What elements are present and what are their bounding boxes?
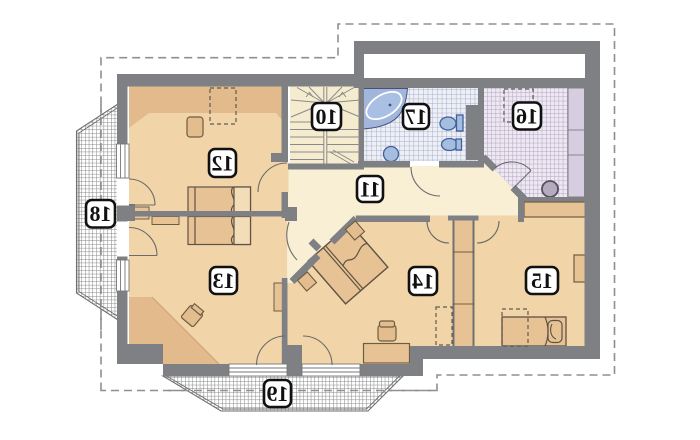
- svg-text:14: 14: [412, 269, 434, 294]
- svg-text:18: 18: [90, 201, 112, 226]
- svg-text:10: 10: [316, 104, 338, 129]
- svg-text:17: 17: [405, 104, 427, 129]
- svg-text:15: 15: [531, 268, 553, 293]
- svg-text:11: 11: [360, 177, 381, 202]
- svg-text:12: 12: [212, 151, 234, 176]
- svg-text:16: 16: [516, 104, 538, 129]
- svg-text:19: 19: [267, 381, 289, 406]
- svg-text:13: 13: [213, 268, 235, 293]
